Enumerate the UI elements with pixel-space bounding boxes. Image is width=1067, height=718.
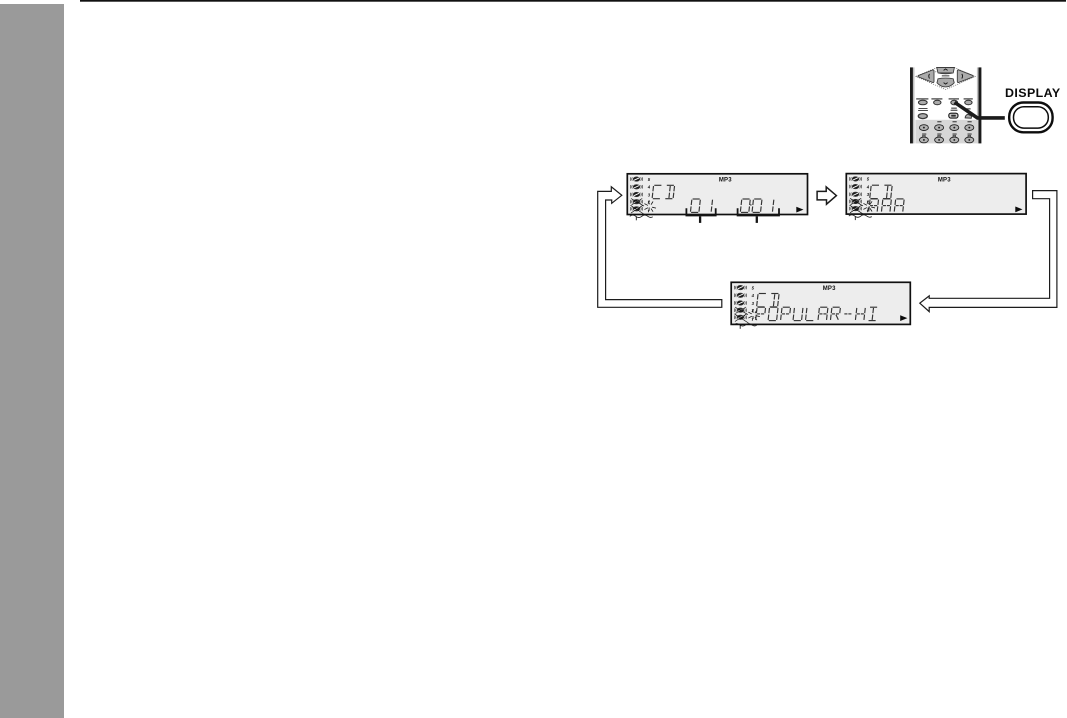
svg-text:MP3: MP3: [719, 178, 732, 184]
svg-text:MP3: MP3: [823, 286, 836, 292]
svg-text:MP3: MP3: [938, 178, 951, 184]
svg-text:DISPLAY: DISPLAY: [1005, 86, 1061, 100]
